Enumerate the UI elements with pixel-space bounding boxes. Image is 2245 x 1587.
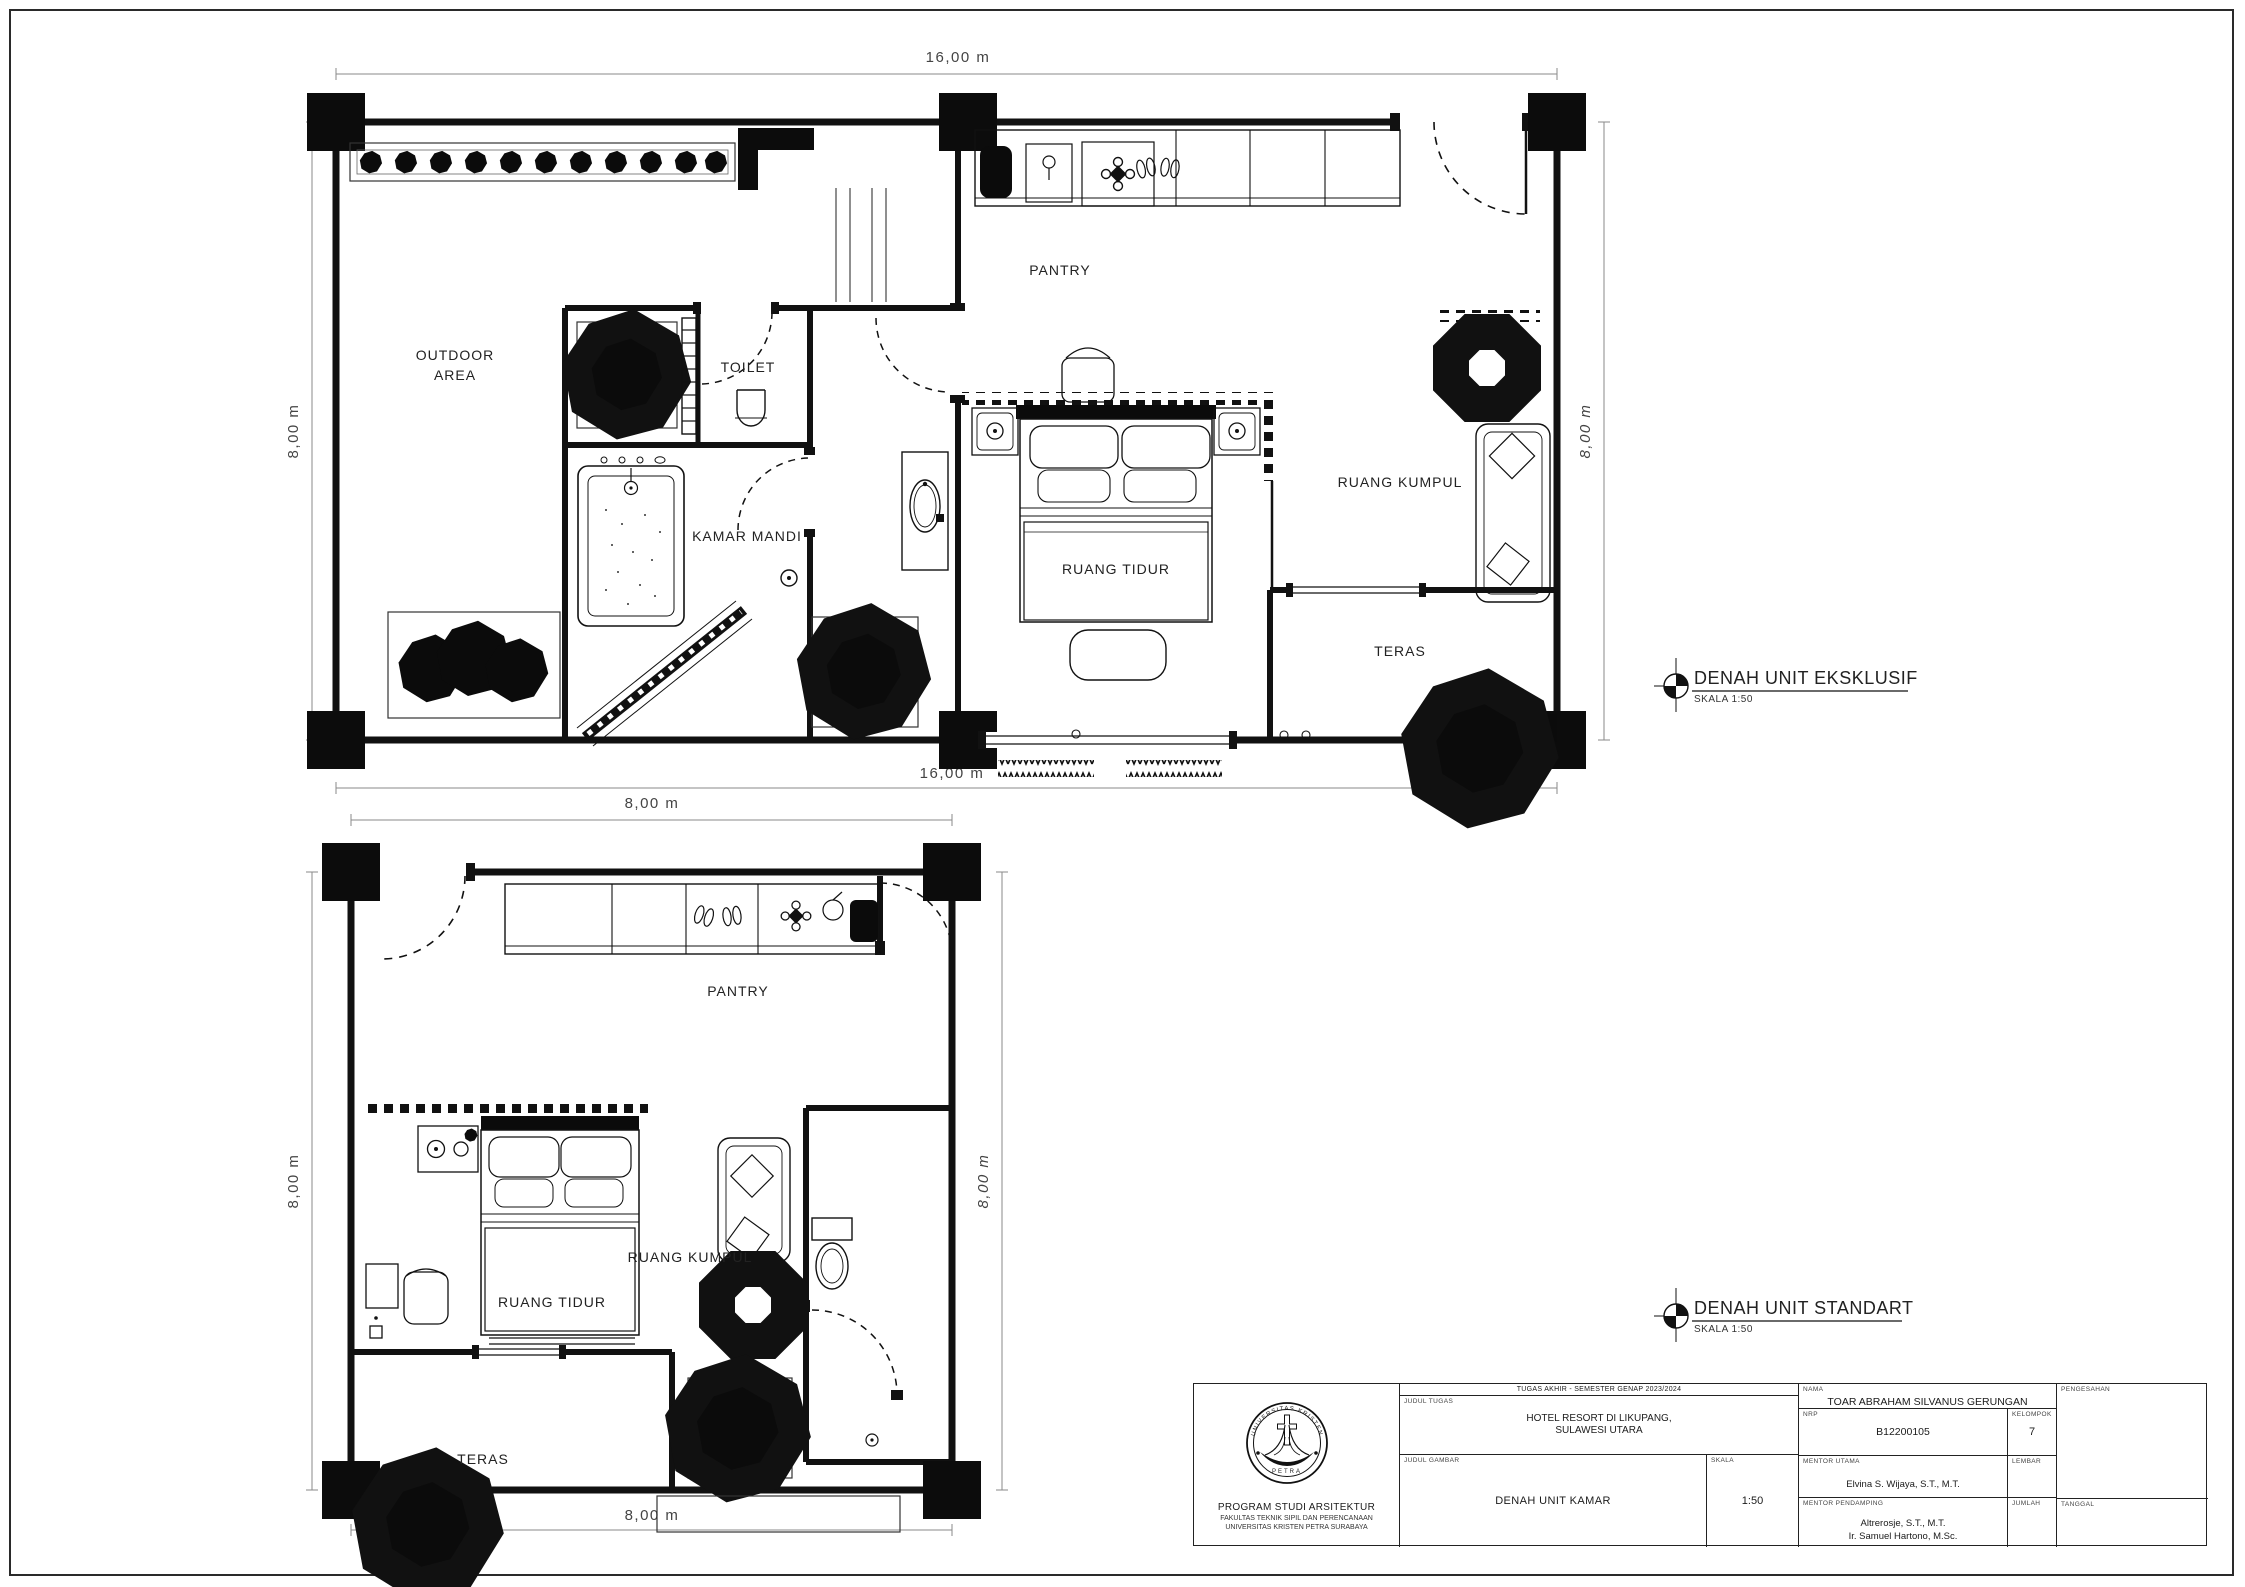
- dim-left: 8,00 m: [285, 1154, 302, 1209]
- skala-label: SKALA: [1711, 1457, 1734, 1464]
- plan-scale-text: SKALA 1:50: [1694, 694, 1753, 705]
- dim-top: 8,00 m: [625, 795, 680, 812]
- kelompok-cell: KELOMPOK 7: [2007, 1409, 2056, 1456]
- shrub-row: [1126, 760, 1222, 777]
- sofa: [718, 1138, 790, 1262]
- floor-plan-sheet: 16,00 m 16,00 m 8,00 m 8,00 m: [0, 0, 2245, 1587]
- entry-door-swing: [382, 876, 465, 959]
- room-label-pantry: PANTRY: [707, 983, 769, 999]
- pengesahan-cell: PENGESAHAN: [2056, 1384, 2208, 1499]
- nama-cell: NAMA TOAR ABRAHAM SILVANUS GERUNGAN: [1798, 1384, 2056, 1409]
- north-symbol: [1654, 658, 1688, 712]
- sofa: [1476, 424, 1550, 602]
- bath-door-swing: [738, 458, 810, 530]
- room-label-kamar-mandi: KAMAR MANDI: [692, 528, 802, 544]
- nrp-label: NRP: [1803, 1411, 1818, 1418]
- pengesahan-label: PENGESAHAN: [2061, 1386, 2110, 1393]
- kitchen-counter: [975, 130, 1400, 206]
- teras-plant: [1420, 698, 1557, 800]
- entry-door-swing: [1434, 122, 1526, 214]
- mentor-pendamping-cell: MENTOR PENDAMPING Altrerosje, S.T., M.T.…: [1798, 1498, 2007, 1547]
- plan-title-text: DENAH UNIT EKSKLUSIF: [1694, 668, 1918, 688]
- nama-label: NAMA: [1803, 1386, 1823, 1393]
- nightstand-left: [972, 408, 1018, 455]
- mentor-pendamping-line2: Ir. Samuel Hartono, M.Sc.: [1849, 1531, 1958, 1543]
- dimension-lines-standart: [306, 814, 1008, 1536]
- planter: [688, 1378, 792, 1478]
- university-logo: UNIVERSITAS KRISTEN PETRA: [1244, 1400, 1330, 1486]
- screen-wall: [365, 1100, 648, 1113]
- dim-right: 8,00 m: [1577, 404, 1594, 459]
- room-label-toilet: TOILET: [721, 359, 776, 375]
- room-label-teras: TERAS: [457, 1451, 509, 1467]
- room-label-outdoor: OUTDOOR: [416, 347, 495, 363]
- desk-chair: [366, 1264, 448, 1338]
- diagonal-wall: [577, 601, 752, 746]
- outer-wall: [351, 872, 952, 1490]
- bathtub: [578, 457, 684, 626]
- toilet-fixture: [812, 1218, 852, 1289]
- mentor-utama-label: MENTOR UTAMA: [1803, 1458, 1860, 1465]
- outdoor-plant: [380, 1476, 476, 1574]
- tanggal-cell: TANGGAL: [2056, 1499, 2208, 1547]
- slippers: [722, 906, 742, 926]
- tanggal-label: TANGGAL: [2061, 1501, 2094, 1508]
- judul-gambar-label: JUDUL GAMBAR: [1404, 1457, 1459, 1464]
- room-label-outdoor2: AREA: [434, 367, 476, 383]
- header-cell: TUGAS AKHIR - SEMESTER GENAP 2023/2024: [1400, 1384, 1798, 1396]
- dim-bottom: 8,00 m: [625, 1507, 680, 1524]
- plan-title-eksklusif: DENAH UNIT EKSKLUSIF SKALA 1:50: [1654, 658, 1918, 712]
- teras-window: [1286, 583, 1426, 597]
- mentor-pendamping-label: MENTOR PENDAMPING: [1803, 1500, 1883, 1507]
- logo-cell: UNIVERSITAS KRISTEN PETRA PROGRAM STUDI …: [1194, 1384, 1400, 1547]
- bath-planter: [577, 322, 677, 428]
- shower-door-swing: [812, 1310, 897, 1395]
- interior-walls: [351, 876, 952, 1490]
- room-label-ruang-tidur: RUANG TIDUR: [1062, 561, 1170, 577]
- teras-window: [472, 1345, 566, 1359]
- jumlah-label: JUMLAH: [2012, 1500, 2040, 1507]
- institution-line1: PROGRAM STUDI ARSITEKTUR: [1194, 1502, 1399, 1513]
- judul-gambar-cell: JUDUL GAMBAR DENAH UNIT KAMAR: [1400, 1455, 1706, 1547]
- planter-strip: [350, 143, 735, 181]
- slippers: [693, 905, 716, 928]
- judul-tugas-line1: HOTEL RESORT DI LIKUPANG,: [1526, 1413, 1671, 1426]
- vanity-sink: [902, 452, 948, 570]
- dim-left: 8,00 m: [285, 404, 302, 459]
- stove-burners: [1102, 158, 1135, 191]
- corridor-planter: [812, 617, 918, 727]
- skala-value: 1:50: [1707, 1455, 1798, 1547]
- skala-cell: SKALA 1:50: [1706, 1455, 1798, 1547]
- lembar-label: LEMBAR: [2012, 1458, 2041, 1465]
- institution-line2: FAKULTAS TEKNIK SIPIL DAN PERENCANAAN: [1194, 1515, 1399, 1522]
- judul-gambar-value: DENAH UNIT KAMAR: [1400, 1455, 1706, 1547]
- mentor-utama-cell: MENTOR UTAMA Elvina S. Wijaya, S.T., M.T…: [1798, 1456, 2007, 1498]
- judul-tugas-cell: JUDUL TUGAS HOTEL RESORT DI LIKUPANG, SU…: [1400, 1396, 1798, 1455]
- header-text: TUGAS AKHIR - SEMESTER GENAP 2023/2024: [1400, 1384, 1798, 1395]
- room-label-pantry: PANTRY: [1029, 262, 1091, 278]
- octagon-table: [1451, 332, 1523, 404]
- stove-burners: [781, 901, 811, 931]
- dim-right: 8,00 m: [975, 1154, 992, 1209]
- corridor-door-swing: [876, 318, 950, 392]
- entry-opening: [380, 863, 468, 881]
- plan-title-text: DENAH UNIT STANDART: [1694, 1298, 1914, 1318]
- room-label-ruang-tidur: RUANG TIDUR: [498, 1294, 606, 1310]
- north-symbol: [1654, 1288, 1688, 1342]
- entry-opening: [1400, 113, 1522, 131]
- bed: [1016, 405, 1216, 680]
- jumlah-cell: JUMLAH: [2007, 1498, 2056, 1547]
- room-label-teras: TERAS: [1374, 643, 1426, 659]
- mentor-pendamping-line1: Altrerosje, S.T., M.T.: [1861, 1518, 1946, 1530]
- kelompok-label: KELOMPOK: [2012, 1411, 2052, 1418]
- screen-wall-horizontal: [962, 392, 1278, 405]
- room-label-ruang-kumpul: RUANG KUMPUL: [628, 1249, 753, 1265]
- kitchen-counter: [505, 884, 880, 954]
- wc-fixture: [735, 390, 767, 426]
- outdoor-bench: [657, 1496, 900, 1532]
- shower-head: [866, 1434, 878, 1446]
- dim-top: 16,00 m: [926, 49, 991, 66]
- title-block: UNIVERSITAS KRISTEN PETRA PROGRAM STUDI …: [1193, 1383, 2207, 1546]
- nightstand-right: [1214, 408, 1260, 455]
- screen-wall-vertical: [1264, 405, 1277, 481]
- trellis-lines: [836, 188, 886, 302]
- judul-tugas-label: JUDUL TUGAS: [1404, 1398, 1453, 1405]
- wall-step: [738, 128, 814, 190]
- outdoor-planter: [388, 612, 560, 718]
- bottom-window: [978, 731, 1237, 749]
- slippers: [1160, 158, 1181, 179]
- shrub-row: [998, 760, 1094, 777]
- logo-bottom-text: PETRA: [1272, 1469, 1302, 1475]
- plan-scale-text: SKALA 1:50: [1694, 1324, 1753, 1335]
- nrp-value: B12200105: [1799, 1409, 2007, 1455]
- plan-standart: 8,00 m 8,00 m 8,00 m 8,00 m: [285, 795, 1008, 1573]
- room-label-ruang-kumpul: RUANG KUMPUL: [1338, 474, 1463, 490]
- kitchenette-box: [418, 1126, 478, 1172]
- institution-line3: UNIVERSITAS KRISTEN PETRA SURABAYA: [1194, 1524, 1399, 1531]
- judul-tugas-line2: SULAWESI UTARA: [1555, 1425, 1642, 1438]
- plan-title-standart: DENAH UNIT STANDART SKALA 1:50: [1654, 1288, 1914, 1342]
- nrp-cell: NRP B12200105: [1798, 1409, 2007, 1456]
- octagon-table: [717, 1269, 789, 1341]
- plan-eksklusif: 16,00 m 16,00 m 8,00 m 8,00 m: [285, 49, 1610, 799]
- lembar-cell: LEMBAR: [2007, 1456, 2056, 1498]
